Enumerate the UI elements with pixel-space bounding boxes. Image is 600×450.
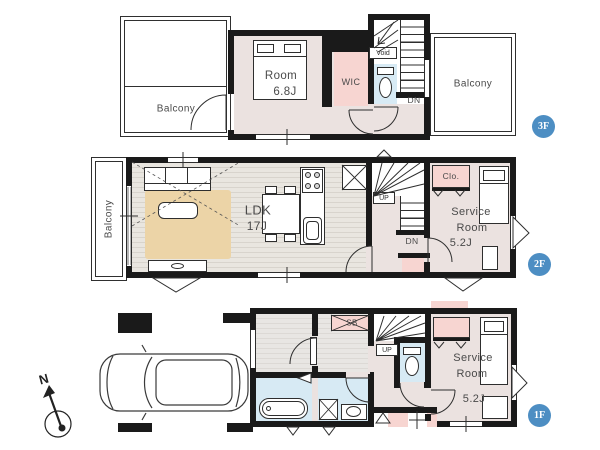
washbasin-bowl [346, 406, 361, 417]
dining-chair [265, 186, 277, 194]
bed-line-2f [479, 183, 509, 184]
car-icon [100, 345, 248, 420]
up-2f-text: UP [379, 195, 389, 202]
garage-wall-stub [118, 313, 152, 333]
balcony-3f-left-divider [125, 86, 226, 87]
wall-segment [126, 272, 516, 278]
stairs-3f-treads [400, 20, 424, 92]
north-label: N [37, 370, 50, 387]
ldk-name: LDK [245, 203, 272, 218]
pillow-3f [284, 44, 301, 53]
wall-segment [368, 14, 374, 104]
wall-segment [433, 338, 470, 341]
service-2f-line1: Service [451, 206, 490, 218]
toilet-bowl-3f [379, 77, 392, 98]
floor-plan: Balcony Void Room 6.8J WIC DN Balcony 3F… [0, 0, 600, 450]
dn-2f-label: DN [405, 236, 418, 246]
washing-machine-1f [319, 399, 338, 420]
wall-segment [398, 253, 430, 258]
wall-segment [322, 36, 332, 107]
balcony-3f-left [120, 16, 231, 137]
pillow-2f [483, 170, 505, 181]
window-2f-right [510, 216, 516, 249]
service-1f-line1: Service [453, 352, 492, 364]
stove-burner [314, 172, 320, 178]
sofa-cushion-line [187, 168, 188, 183]
stove-burner [314, 183, 320, 189]
wall-segment [256, 372, 346, 378]
landing-2f [402, 258, 424, 272]
badge-3f-text: 3F [538, 121, 549, 132]
refrigerator-space-2f [342, 165, 367, 190]
wall-segment [250, 421, 374, 427]
window-2f-top [168, 157, 198, 163]
room-3f-name: Room [265, 70, 297, 82]
pillow-3f [257, 44, 274, 53]
porch-pink [388, 413, 408, 427]
stairs-2f-treads [400, 196, 424, 230]
floor-badge-1f: 1F [528, 404, 551, 427]
wall-segment [432, 188, 470, 191]
stove-burner [305, 183, 311, 189]
wall-segment [312, 314, 318, 336]
sofa-2f [144, 167, 211, 191]
wall-segment [424, 262, 430, 278]
wall-segment [368, 314, 374, 346]
sofa-cushion-line [165, 168, 166, 183]
up-label-2f: UP [373, 192, 395, 204]
window-1f-left [250, 330, 256, 368]
service-2f-size: 5.2J [450, 237, 472, 249]
wall-segment [425, 414, 431, 421]
window-3f-bottom [256, 134, 310, 140]
balcony-door-2f [126, 186, 132, 266]
wall-segment [228, 30, 234, 94]
wall-segment [396, 230, 430, 235]
closet-2f-label: Clo. [443, 171, 460, 181]
toilet-bowl-1f [405, 356, 419, 376]
dining-chair [284, 186, 296, 194]
dining-chair [265, 234, 277, 242]
tv-board-oval [171, 263, 184, 269]
toilet-tank-1f [403, 347, 421, 355]
void-text: Void [376, 50, 390, 57]
compass-icon [43, 385, 71, 437]
toilet-tank-3f [377, 67, 394, 75]
bed-line-3f [253, 56, 307, 57]
up-1f-text: UP [382, 347, 392, 354]
coffee-table-2f [158, 202, 198, 219]
bed-line-1f [480, 334, 508, 335]
shoe-box-label: SB [346, 319, 357, 328]
door-leaf-1f-hall [310, 337, 317, 365]
window-1f-bottom [450, 421, 482, 427]
balcony-3f-left-inner [124, 20, 227, 133]
balcony-3f-left-label: Balcony [157, 104, 195, 115]
ldk-size: 17J [247, 219, 268, 233]
badge-1f-text: 1F [534, 410, 545, 421]
wall-segment [250, 308, 517, 314]
sofa-seat-line [145, 183, 211, 184]
dining-chair [284, 234, 296, 242]
window-2f-bottom [258, 272, 300, 278]
wall-segment [126, 266, 132, 278]
desk-2f [482, 246, 498, 270]
porch-canopy-1f [431, 301, 468, 308]
balcony-2f-label: Balcony [104, 200, 115, 238]
wall-segment [366, 157, 372, 246]
floor-badge-3f: 3F [532, 115, 555, 138]
balcony-3f-right-label: Balcony [454, 79, 492, 90]
wall-segment [332, 36, 370, 52]
void-label-3f: Void [369, 47, 397, 59]
wall-segment [368, 407, 437, 413]
badge-2f-text: 2F [534, 259, 545, 270]
wall-segment [126, 157, 132, 186]
stove-burner [305, 172, 311, 178]
wic-3f-label: WIC [342, 77, 361, 87]
service-2f-line2: Room [457, 222, 488, 234]
rug-2f [145, 190, 231, 259]
wall-segment [368, 374, 374, 421]
closet-1f [433, 317, 470, 338]
bathtub-drain [266, 406, 271, 411]
wall-segment [425, 314, 431, 388]
kitchen-sink-inner [306, 221, 319, 240]
up-label-1f: UP [376, 344, 398, 356]
garage-wall-stub [118, 423, 152, 432]
window-1f-right [511, 365, 517, 400]
wall-segment [424, 157, 430, 238]
service-1f-size: 5.2J [463, 393, 485, 405]
dn-3f-label: DN [407, 95, 420, 105]
service-1f-line2: Room [457, 368, 488, 380]
room-3f-size: 6.8J [273, 86, 296, 98]
floor-badge-2f: 2F [528, 253, 551, 276]
pillow-1f [484, 321, 504, 332]
wall-segment [394, 382, 400, 388]
desk-1f [482, 396, 508, 419]
garage-wall-stub [223, 313, 253, 323]
